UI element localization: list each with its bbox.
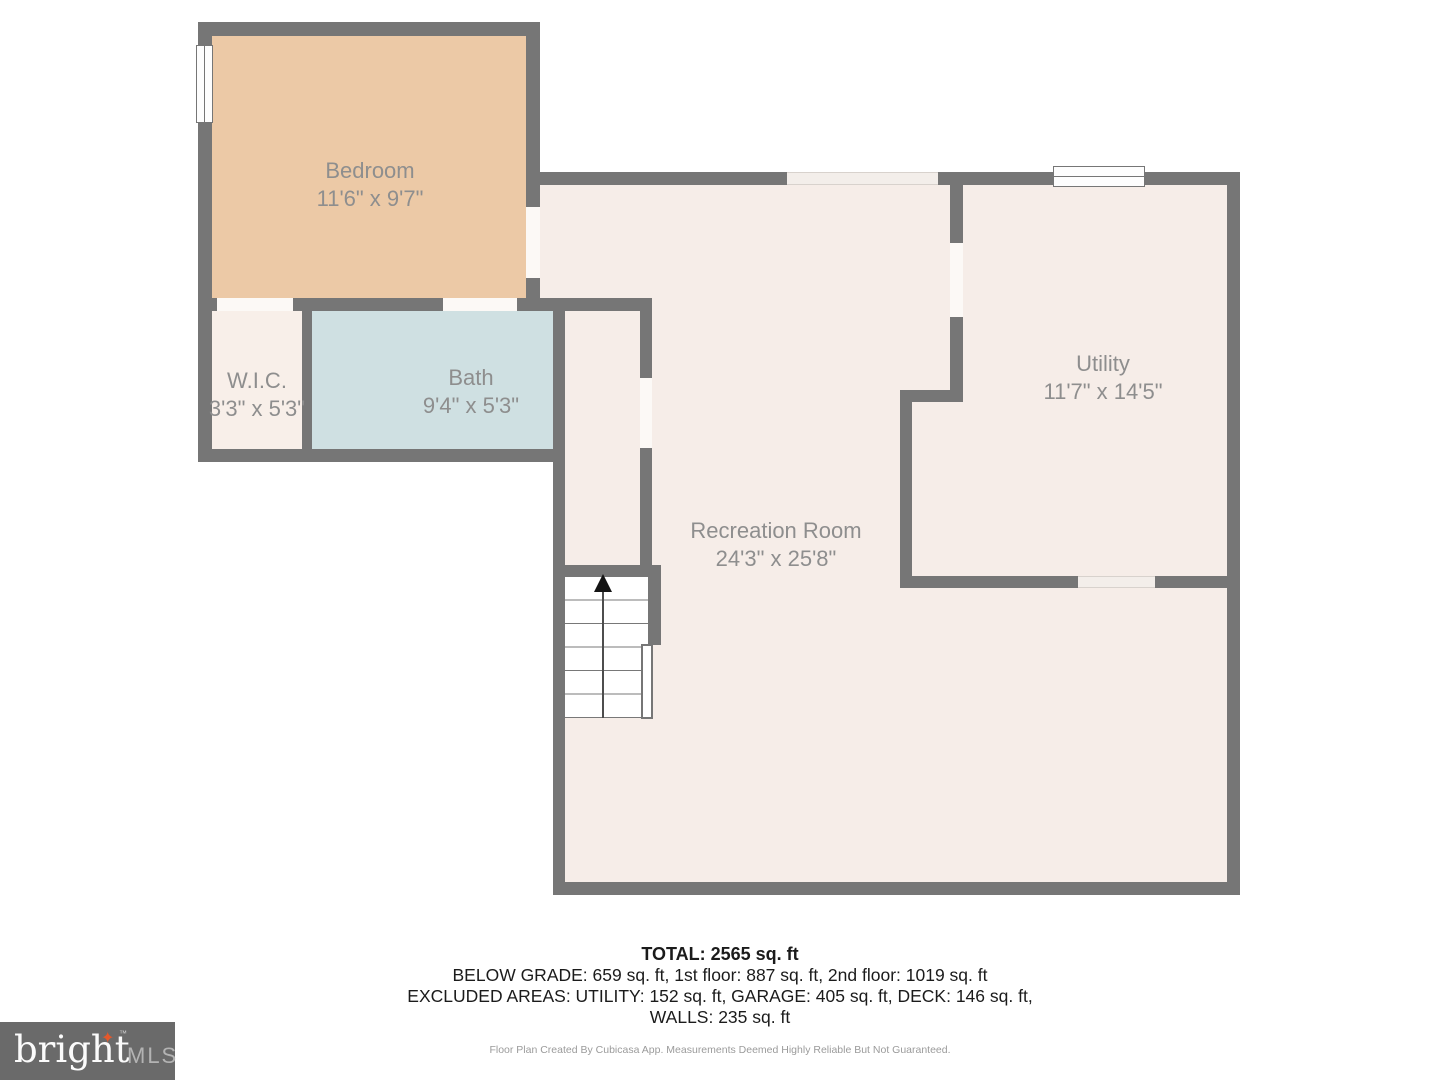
utility-label: Utility 11'7" x 14'5"	[1043, 350, 1162, 406]
wic-dims: 3'3" x 5'3"	[209, 395, 305, 423]
wall-utility-bottom-right	[1155, 576, 1240, 588]
recreation-room-floor-upper	[540, 185, 1227, 311]
wic-name: W.I.C.	[209, 367, 305, 395]
door-bedroom-to-bath	[443, 298, 517, 311]
utility-window	[1053, 166, 1145, 187]
door-recreation-to-hallway	[640, 378, 652, 448]
bright-mls-star-icon: ✦	[101, 1031, 114, 1047]
wall-wic-bath-bottom	[198, 449, 565, 462]
wall-recreation-top-left	[535, 172, 787, 185]
wall-stairs-right	[648, 565, 661, 645]
utility-dims: 11'7" x 14'5"	[1043, 378, 1162, 406]
stairs-up-arrow-icon	[594, 574, 612, 592]
bright-mls-logo-suffix: MLS	[127, 1045, 178, 1067]
recreation-room-name: Recreation Room	[690, 517, 861, 545]
wall-hallway-right-lower	[640, 448, 652, 565]
bright-mls-trademark: ™	[119, 1030, 127, 1038]
walls-area-text: WALLS: 235 sq. ft	[0, 1007, 1440, 1028]
floor-plan: Bedroom 11'6" x 9'7" W.I.C. 3'3" x 5'3" …	[0, 0, 1440, 1080]
wall-utility-bottom-left	[900, 576, 1078, 588]
wall-recreation-left	[553, 298, 565, 895]
utility-window-mullion	[1054, 176, 1144, 177]
recreation-room-dims: 24'3" x 25'8"	[690, 545, 861, 573]
stairs	[565, 577, 648, 718]
wall-utility-left-upper	[950, 185, 963, 243]
excluded-areas-text: EXCLUDED AREAS: UTILITY: 152 sq. ft, GAR…	[0, 986, 1440, 1007]
wall-outer-right	[1227, 172, 1240, 895]
opening-utility-bottom	[1078, 576, 1155, 588]
bedroom-dims: 11'6" x 9'7"	[317, 185, 424, 213]
wic-label: W.I.C. 3'3" x 5'3"	[209, 367, 305, 423]
utility-name: Utility	[1043, 350, 1162, 378]
door-recreation-to-utility	[950, 243, 963, 317]
wall-utility-jog	[900, 390, 963, 402]
wall-utility-left-mid	[950, 317, 963, 392]
bedroom-label: Bedroom 11'6" x 9'7"	[317, 157, 424, 213]
bedroom-window-mullion	[204, 46, 205, 122]
bedroom-window	[196, 45, 213, 123]
bath-dims: 9'4" x 5'3"	[423, 392, 519, 420]
area-summary: TOTAL: 2565 sq. ft BELOW GRADE: 659 sq. …	[0, 944, 1440, 1028]
door-bedroom-to-wic	[217, 298, 293, 311]
door-bedroom-to-recreation	[526, 207, 540, 278]
bedroom-name: Bedroom	[317, 157, 424, 185]
disclaimer-text: Floor Plan Created By Cubicasa App. Meas…	[0, 1044, 1440, 1056]
wall-bedroom-top	[198, 22, 540, 36]
bath-label: Bath 9'4" x 5'3"	[423, 364, 519, 420]
stairs-direction-line	[602, 592, 604, 718]
total-area-text: TOTAL: 2565 sq. ft	[0, 944, 1440, 965]
recreation-room-label: Recreation Room 24'3" x 25'8"	[690, 517, 861, 573]
stairs-railing	[641, 644, 653, 719]
wall-utility-left-lower	[900, 402, 912, 588]
wall-hallway-right-upper	[640, 308, 652, 378]
wall-outer-bottom	[553, 882, 1240, 895]
floor-areas-text: BELOW GRADE: 659 sq. ft, 1st floor: 887 …	[0, 965, 1440, 986]
bath-name: Bath	[423, 364, 519, 392]
opening-recreation-top	[787, 172, 938, 185]
